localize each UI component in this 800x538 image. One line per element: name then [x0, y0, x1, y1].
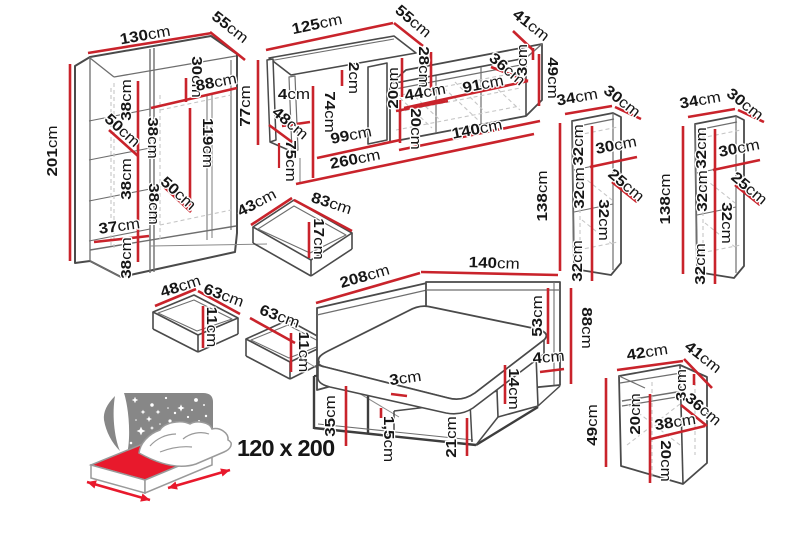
svg-text:32cm: 32cm — [595, 199, 612, 241]
svg-text:38cm: 38cm — [118, 79, 135, 121]
svg-text:119cm: 119cm — [199, 118, 216, 168]
svg-text:20cm: 20cm — [385, 67, 402, 109]
svg-text:32cm: 32cm — [571, 167, 588, 209]
svg-text:4cm: 4cm — [532, 347, 565, 367]
svg-text:32cm: 32cm — [692, 243, 709, 285]
svg-text:32cm: 32cm — [569, 240, 586, 282]
svg-text:20cm: 20cm — [407, 108, 424, 150]
svg-text:32cm: 32cm — [570, 124, 587, 166]
svg-text:1,5cm: 1,5cm — [380, 416, 397, 462]
svg-text:88cm: 88cm — [578, 307, 595, 349]
svg-text:17cm: 17cm — [310, 218, 327, 260]
svg-text:120 x 200: 120 x 200 — [237, 435, 335, 461]
svg-text:75cm: 75cm — [282, 140, 299, 182]
svg-text:2cm: 2cm — [345, 62, 362, 94]
svg-text:3cm: 3cm — [514, 44, 531, 76]
svg-text:32cm: 32cm — [693, 127, 710, 169]
svg-text:38cm: 38cm — [145, 183, 162, 225]
svg-text:11cm: 11cm — [295, 332, 312, 373]
svg-text:14cm: 14cm — [505, 368, 522, 410]
svg-text:20cm: 20cm — [657, 440, 674, 482]
svg-text:49cm: 49cm — [584, 404, 601, 446]
svg-text:21cm: 21cm — [443, 416, 460, 458]
svg-text:32cm: 32cm — [718, 202, 735, 244]
svg-text:38cm: 38cm — [144, 117, 161, 159]
svg-text:77cm: 77cm — [237, 85, 254, 127]
svg-text:4cm: 4cm — [278, 86, 310, 103]
svg-text:138cm: 138cm — [657, 173, 674, 224]
svg-text:140cm: 140cm — [468, 254, 520, 273]
svg-text:74cm: 74cm — [321, 91, 338, 133]
svg-text:20cm: 20cm — [627, 393, 644, 435]
svg-text:138cm: 138cm — [534, 170, 551, 221]
svg-text:38cm: 38cm — [118, 158, 135, 200]
svg-text:11cm: 11cm — [203, 307, 220, 348]
svg-text:28cm: 28cm — [415, 46, 432, 88]
svg-text:38cm: 38cm — [118, 237, 135, 279]
svg-text:201cm: 201cm — [44, 125, 61, 176]
svg-text:32cm: 32cm — [694, 170, 711, 212]
svg-text:35cm: 35cm — [322, 395, 339, 437]
svg-text:53cm: 53cm — [529, 295, 546, 337]
